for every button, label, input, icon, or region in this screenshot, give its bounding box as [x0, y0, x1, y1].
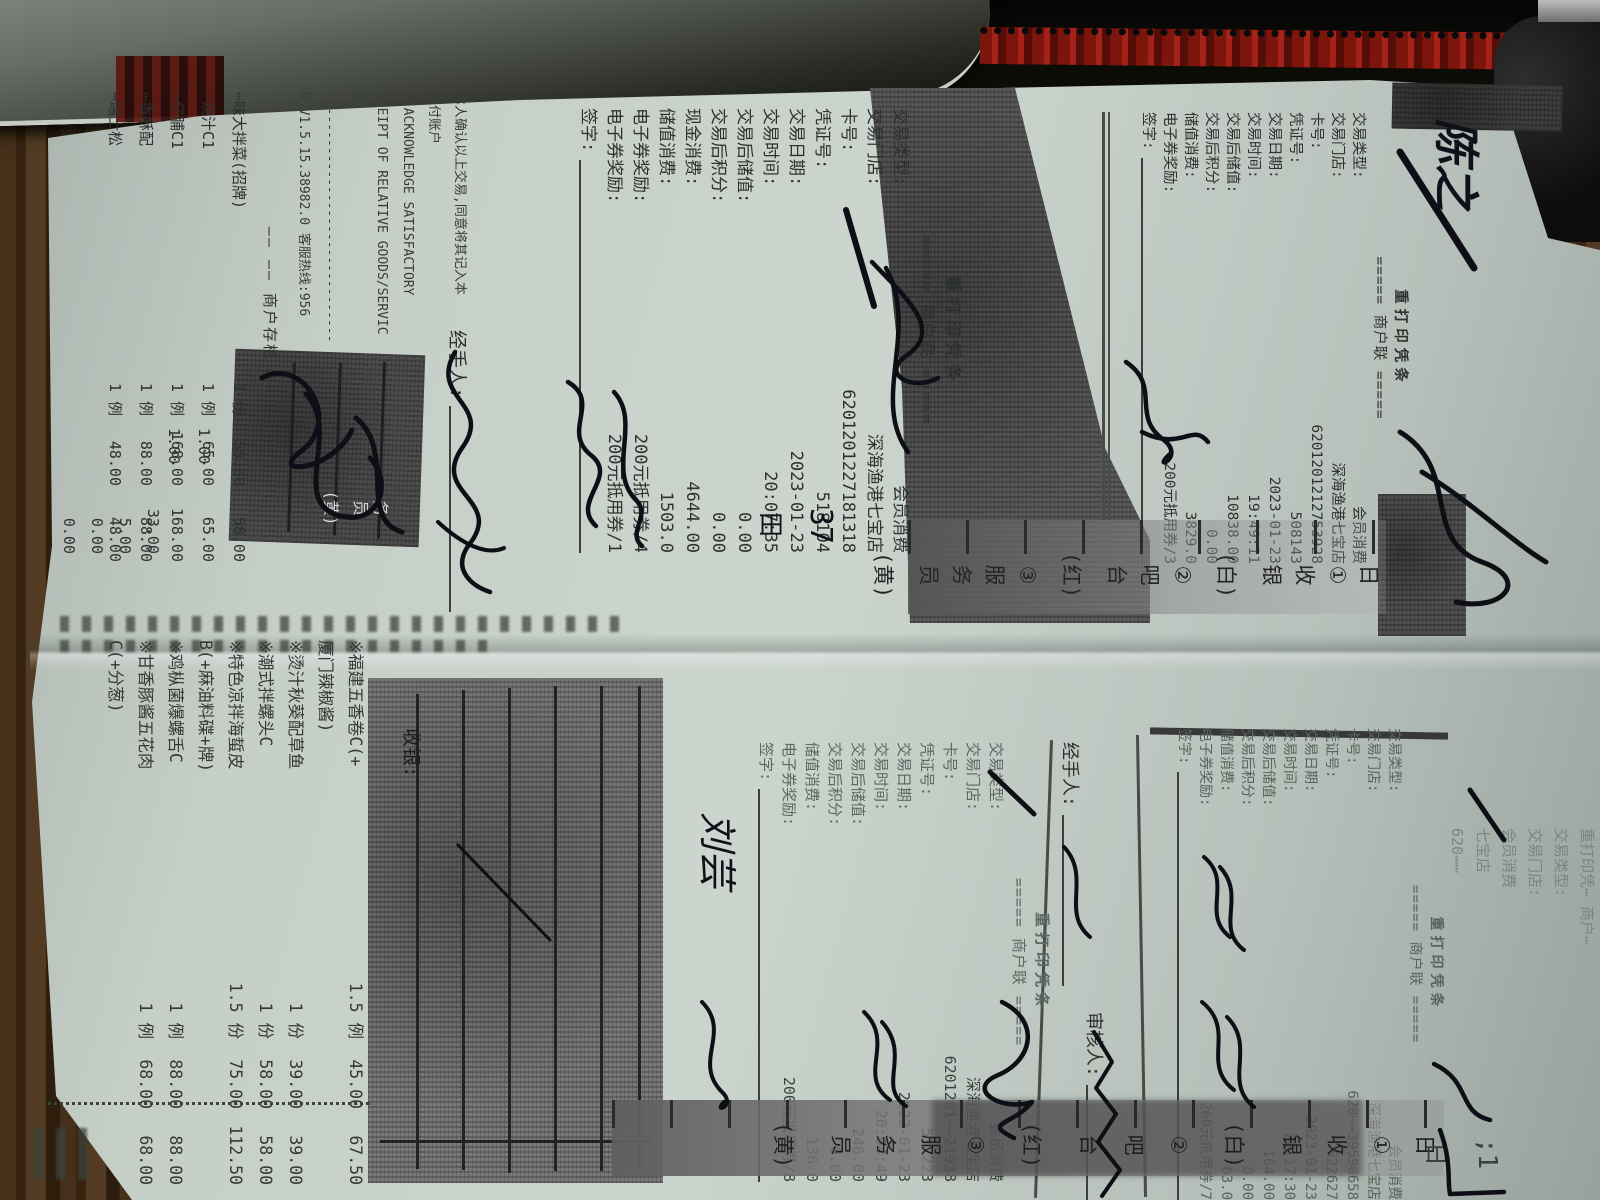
legend-char: ②: [1170, 566, 1194, 585]
receipt-field-label: 卡号:: [1305, 112, 1326, 150]
receipt-field-label: 电子券奖励:: [1158, 112, 1179, 193]
disclaimer-line: ECEIPT OF RELATIVE GOODS/SERVIC: [368, 92, 394, 392]
receipt-field-label: 储值消费:: [1215, 728, 1236, 792]
receipt-518104: 重打印凭条 ===== 商户联 ===== 交易类型:会员消费交易门店:深海渔港…: [545, 108, 965, 553]
signature-line: [449, 406, 472, 612]
receipt-508143: 重打印凭条 ===== 商户联 ===== 交易类型:会员消费交易门店:深海渔港…: [1108, 112, 1408, 564]
receipt-field-label: 交易类型:: [984, 742, 1007, 811]
handler-label-text: 经手人:: [1058, 742, 1084, 807]
receipt-field: 现金消费:4644.00: [679, 108, 705, 553]
disclaimer-line: : ACKNOWLEDGE SATISFACTORY: [394, 92, 420, 392]
receipt-field-label: 交易时间:: [1242, 112, 1263, 179]
receipt-field: 卡号:6201201227181318: [835, 108, 861, 553]
receipt-order-items: ※福建五香卷C(+1.5 例45.0067.50 厦门辣椒酱)※烫汁秋葵配草鱼1…: [30, 640, 370, 1185]
receipt-field-value: 6201201227181318: [835, 389, 861, 553]
table-number: 37: [803, 508, 838, 544]
receipt-field: 交易类型:会员消费: [887, 108, 913, 553]
order-item-qty: 1.5 份: [220, 981, 250, 1039]
handwritten-name-liu: 刘芸: [693, 812, 748, 888]
order-item-qty: 1 份: [250, 981, 280, 1039]
legend-char: 收: [1323, 1135, 1353, 1156]
handler-label-bottom: 经手人:: [1048, 742, 1084, 986]
order-item-qty: 1.5 例: [340, 981, 370, 1039]
receipt-field-label: 交易时间:: [1278, 728, 1299, 792]
ruled-line: [462, 690, 465, 1170]
staff-hint-char: 员: [350, 500, 374, 516]
sign-label: 签字:: [1173, 728, 1194, 764]
receipt-field: 交易后储值:0.00: [731, 108, 757, 553]
receipt-merchant-stub: —— —— 商户存根 —— —— ⋯味大拌菜(招牌)1 份58.0058.00⋯…: [0, 92, 285, 562]
receipt-field-label: 凭证号:: [1320, 728, 1341, 778]
legend-char: ③: [963, 1136, 987, 1155]
receipt-field-value: 1503.0: [653, 492, 679, 553]
red-zipper-case-edge: [980, 27, 1570, 70]
stub-item-qty: 1 份: [223, 358, 254, 416]
legend-char: 务: [947, 565, 977, 586]
order-item-total: [310, 1109, 340, 1185]
legend-char: 吧: [1136, 565, 1166, 586]
stub-extra-a2: 5.00: [111, 464, 139, 554]
legend-char: 服: [916, 1135, 946, 1156]
legend-char: 服: [980, 565, 1010, 586]
cashier-label: 收银:: [392, 728, 426, 820]
receipt-field-label: 凭证号:: [915, 742, 938, 796]
handler-label-text: 经手人:: [445, 330, 472, 398]
stub-item-qty: 1 例: [99, 358, 130, 416]
receipt-field-label: 卡号:: [1341, 728, 1362, 764]
legend-strip-bottom: 日①收银(白)②吧台(红)③服务员(黄): [612, 1100, 1444, 1176]
receipt-field-label: 现金消费:: [679, 108, 705, 186]
legend-char: 台: [1075, 1135, 1105, 1156]
stub-item-name: ⋯瑞士松: [99, 92, 130, 358]
legend-char: 台: [1103, 565, 1133, 586]
stub-item-qty: 1 例: [130, 358, 161, 416]
sign-label: 签字:: [754, 742, 777, 781]
stub-item-qty: 1 例: [192, 358, 223, 416]
partial-lines: 重打印凭⋯ 商户⋯交易类型:交易门店:会员消费七宝店620⋯⋯: [1444, 828, 1600, 1200]
order-item-name: 厦门辣椒酱): [310, 640, 340, 981]
sheet-rule-line: [1102, 112, 1105, 567]
staff-hint-chars: 务员(黄): [300, 496, 390, 520]
order-item-price: [100, 1039, 130, 1109]
disclaimer-line: S: [342, 92, 368, 392]
handler-label-top: 经手人:: [432, 330, 472, 612]
ruled-line: [600, 686, 603, 1171]
receipt-field-label: 交易门店:: [1362, 728, 1383, 792]
receipt-field-label: 电子券奖励:: [627, 108, 653, 203]
stub-item-name: ⋯烧汁C1: [192, 92, 223, 358]
receipt-field: 电子券奖励:200元抵用券/4: [627, 108, 653, 553]
receipt-field-value: 200元抵用券/4: [627, 434, 653, 553]
receipt-field-label: 交易日期:: [1299, 728, 1320, 792]
receipt-field: 凭证号:508143: [1284, 112, 1305, 564]
receipt-title: 重打印凭条: [939, 108, 965, 553]
receipt-field-label: 交易日期:: [783, 108, 809, 186]
stub-item: ⋯烧汁C11 例65.0065.00: [192, 92, 223, 562]
disclaimer-line: D_V1.5.15.38982.0 客服热线:956: [290, 92, 316, 392]
legend-char: 员: [914, 565, 944, 586]
receipt-field: 交易后积分:0.00: [1200, 112, 1221, 564]
receipt-field-label: 交易门店:: [1326, 112, 1347, 179]
ruled-line: [554, 686, 557, 1171]
order-item-price: 39.00: [280, 1039, 310, 1109]
legend-strip-top: 日①收银(白)②吧台(红)③服务员(黄): [908, 520, 1386, 614]
order-item-total: 58.00: [250, 1109, 280, 1185]
signature-line: [1062, 815, 1084, 986]
stub-extra-a4: 0.00: [55, 464, 83, 554]
partial-line: 重打印凭⋯ 商户⋯: [1574, 828, 1600, 1200]
order-item-name: ※福建五香卷C(+: [340, 640, 370, 981]
order-item-qty: [310, 981, 340, 1039]
receipt-field: 电子券奖励:200元抵用券/3: [1158, 112, 1179, 564]
stub-item-total: 58.00: [223, 486, 254, 562]
order-item-price: 45.00: [340, 1039, 370, 1109]
order-item-name: ※潮式拌螺头C: [250, 640, 280, 981]
order-item-qty: [190, 981, 220, 1039]
receipt-fields: 交易类型:会员消费交易门店:深海渔港七宝店卡号:6201201227181318…: [601, 108, 913, 553]
stub-item-name: ⋯味大拌菜(招牌): [223, 92, 254, 358]
legend-char: 银: [1278, 1135, 1308, 1156]
order-item-price: 75.00: [220, 1039, 250, 1109]
stub-item-total: 65.00: [192, 486, 223, 562]
signature-line: [579, 160, 601, 553]
receipt-field-label: 交易后储值:: [1221, 112, 1242, 193]
legend-char: (白): [1220, 1122, 1250, 1168]
stub-extra-a1: 33.00: [139, 464, 167, 554]
order-item-price: 68.00: [130, 1039, 160, 1109]
receipt-field: 交易时间:19:49:11: [1242, 112, 1263, 564]
receipt-title: 重打印凭条: [1389, 112, 1410, 564]
receipt-field: 交易后储值:10838.00: [1221, 112, 1242, 564]
receipt-fields: 交易类型:会员消费交易门店:深海渔港七宝店卡号:6201201212753928…: [1158, 112, 1368, 564]
receipt-field-label: 交易时间:: [757, 108, 783, 186]
receipt-field: 凭证号:518104: [809, 108, 835, 553]
order-item-total: 88.00: [160, 1109, 190, 1185]
legend-char: ①: [1370, 1136, 1394, 1155]
order-item-name: B(+麻油料碟+牌): [190, 640, 220, 981]
receipt-field-label: 卡号:: [938, 742, 961, 781]
dashed-line: [40, 1102, 370, 1105]
receipt-field-value: 深海渔港七宝店: [861, 434, 887, 553]
receipt-field: 储值消费:1503.0: [653, 108, 679, 553]
order-item-price: 88.00: [160, 1039, 190, 1109]
receipt-copy-label: ===== 商户联 =====: [1368, 112, 1389, 564]
table-char: 田: [754, 512, 790, 537]
receipt-field: 储值消费:3829.0: [1179, 112, 1200, 564]
receipt-field-value: 4644.00: [679, 481, 705, 553]
order-item-name: C(+分葱): [100, 640, 130, 981]
receipt-field-value: 200元抵用券/1: [601, 434, 627, 553]
receipt-field: 交易日期:2023-01-23: [783, 108, 809, 553]
legend-char: 员: [826, 1135, 856, 1156]
sign-label: 签字:: [1137, 112, 1158, 150]
receipt-field-label: 储值消费:: [653, 108, 679, 186]
legend-char: 日: [1355, 565, 1385, 586]
receipt-field: 电子券奖励:200元抵用券/1: [601, 108, 627, 553]
stub-item-qty: 1 例: [161, 358, 192, 416]
receipt-field-label: 储值消费:: [800, 742, 823, 811]
receipt-field-label: 交易后储值:: [846, 742, 869, 826]
receipt-field-label: 电子券奖励:: [601, 108, 627, 203]
order-item-qty: 1 份: [280, 981, 310, 1039]
order-item-price: [310, 1039, 340, 1109]
order-item-price: 58.00: [250, 1039, 280, 1109]
partial-line: 交易类型:: [1548, 828, 1574, 1200]
legend-char: 吧: [1120, 1135, 1150, 1156]
cut-text-smear: [60, 616, 620, 632]
legend-char: 务: [871, 1135, 901, 1156]
receipt-field-label: 交易类型:: [1347, 112, 1368, 179]
receipt-field-label: 交易后积分:: [823, 742, 846, 826]
legend-chars: 日①收银(白)②吧台(红)③服务员(黄): [914, 560, 1380, 590]
auditor-label-text: 审核人:: [1082, 1012, 1108, 1077]
stub-separator: —— —— 商户存根 —— ——: [254, 92, 285, 562]
signature-line: [1141, 158, 1158, 564]
mark-one: ;1: [1472, 1138, 1502, 1169]
mark-ri: 日: [1421, 1142, 1456, 1166]
receipt-field-label: 交易后储值:: [731, 108, 757, 203]
receipt-field-label: 电子券奖励:: [1194, 728, 1215, 806]
receipt-field: 交易门店:深海渔港七宝店: [861, 108, 887, 553]
staff-hint-char: (黄): [320, 490, 344, 525]
order-item-total: [190, 1109, 220, 1185]
receipt-field-label: 交易时间:: [869, 742, 892, 811]
receipt-field: 交易类型:会员消费: [1347, 112, 1368, 564]
legend-char: ③: [1015, 566, 1039, 585]
legend-char: 收: [1291, 565, 1321, 586]
order-item-name: ※烫汁秋葵配草鱼: [280, 640, 310, 981]
receipt-copy-label: ===== 商户联 =====: [913, 108, 939, 553]
receipt-field-label: 交易门店:: [861, 108, 887, 186]
legend-char: (黄): [769, 1122, 799, 1168]
order-item-total: 68.00: [130, 1109, 160, 1185]
order-item-name: ※特色凉拌海蜇皮: [220, 640, 250, 981]
photo-of-receipts: { "labels": { "qianzi": "签字:", "jingshou…: [0, 0, 1600, 1200]
cashier-label-text: 收银:: [400, 728, 422, 777]
legend-char: (白): [1212, 552, 1242, 598]
order-item-qty: [100, 981, 130, 1039]
stub-extra-q1: 1.00: [189, 428, 219, 488]
handwritten-name-top-right: 陈之: [1426, 118, 1492, 210]
legend-chars: 日①收银(白)②吧台(红)③服务员(黄): [620, 1130, 1436, 1160]
order-item-name: ※甘香豚酱五花肉: [130, 640, 160, 981]
stub-item-name: ⋯香酥配: [130, 92, 161, 358]
stub-item-name: ⋯仔脯C1: [161, 92, 192, 358]
tick-marks: [908, 520, 1386, 554]
disclaimer-line: --------------------------------: [316, 92, 342, 392]
receipt-field-label: 交易日期:: [892, 742, 915, 811]
receipt-field: 交易时间:20:07:35: [757, 108, 783, 553]
metal-edge: [1538, 0, 1600, 22]
legend-char: 银: [1258, 565, 1288, 586]
legend-char: ①: [1326, 566, 1350, 585]
legend-char: (黄): [869, 552, 899, 598]
receipt-field: 交易门店:深海渔港七宝店: [1326, 112, 1347, 564]
partial-line: 交易门店:: [1522, 828, 1548, 1200]
order-item-qty: 1 例: [130, 981, 160, 1039]
order-item-qty: 1 例: [160, 981, 190, 1039]
order-item-total: 112.50: [220, 1109, 250, 1185]
stub-extra-a3: 0.00: [83, 464, 111, 554]
receipt-field-label: 凭证号:: [809, 108, 835, 169]
receipt-field-label: 交易后积分:: [1200, 112, 1221, 193]
receipt-field-label: 卡号:: [835, 108, 861, 152]
receipt-field-label: 凭证号:: [1284, 112, 1305, 164]
receipt-field-label: 交易后积分:: [1236, 728, 1257, 806]
order-item-total: 67.50: [340, 1109, 370, 1185]
ruled-line: [508, 688, 511, 1173]
order-item-price: [190, 1039, 220, 1109]
receipt-field-label: 电子券奖励:: [777, 742, 800, 826]
receipt-field-label: 交易类型:: [1383, 728, 1404, 792]
stub-extra-amounts: 33.00 5.00 0.00 0.00: [55, 464, 167, 554]
receipt-field-label: 交易后储值:: [1257, 728, 1278, 806]
order-item-name: ※鸡枞菌爆螺舌C: [160, 640, 190, 981]
receipt-field-label: 交易门店:: [961, 742, 984, 811]
receipt-field: 交易日期:2023-01-23: [1263, 112, 1284, 564]
receipt-field-label: 交易后积分:: [705, 108, 731, 203]
receipt-field: 交易后积分:0.00: [705, 108, 731, 553]
receipt-field: 卡号:6201201212753928: [1305, 112, 1326, 564]
ruled-line: [638, 686, 641, 1171]
stub-item-price: 58.00: [223, 416, 254, 486]
receipt-field-label: 储值消费:: [1179, 112, 1200, 179]
order-item-total: 39.00: [280, 1109, 310, 1185]
stub-item: ⋯味大拌菜(招牌)1 份58.0058.00: [223, 92, 254, 562]
legend-char: (红): [1017, 1122, 1047, 1168]
receipt-field-value: 0.00: [705, 512, 731, 553]
legend-char: ②: [1166, 1136, 1190, 1155]
stub-extra-qty: 1.00 1.00: [159, 428, 219, 488]
receipt-field-label: 交易类型:: [887, 108, 913, 186]
receipt-field-label: 交易日期:: [1263, 112, 1284, 179]
sign-label: 签字:: [575, 108, 601, 152]
legend-char: (红): [1057, 552, 1087, 598]
order-item-total: [100, 1109, 130, 1185]
ruled-line: [380, 1140, 651, 1143]
